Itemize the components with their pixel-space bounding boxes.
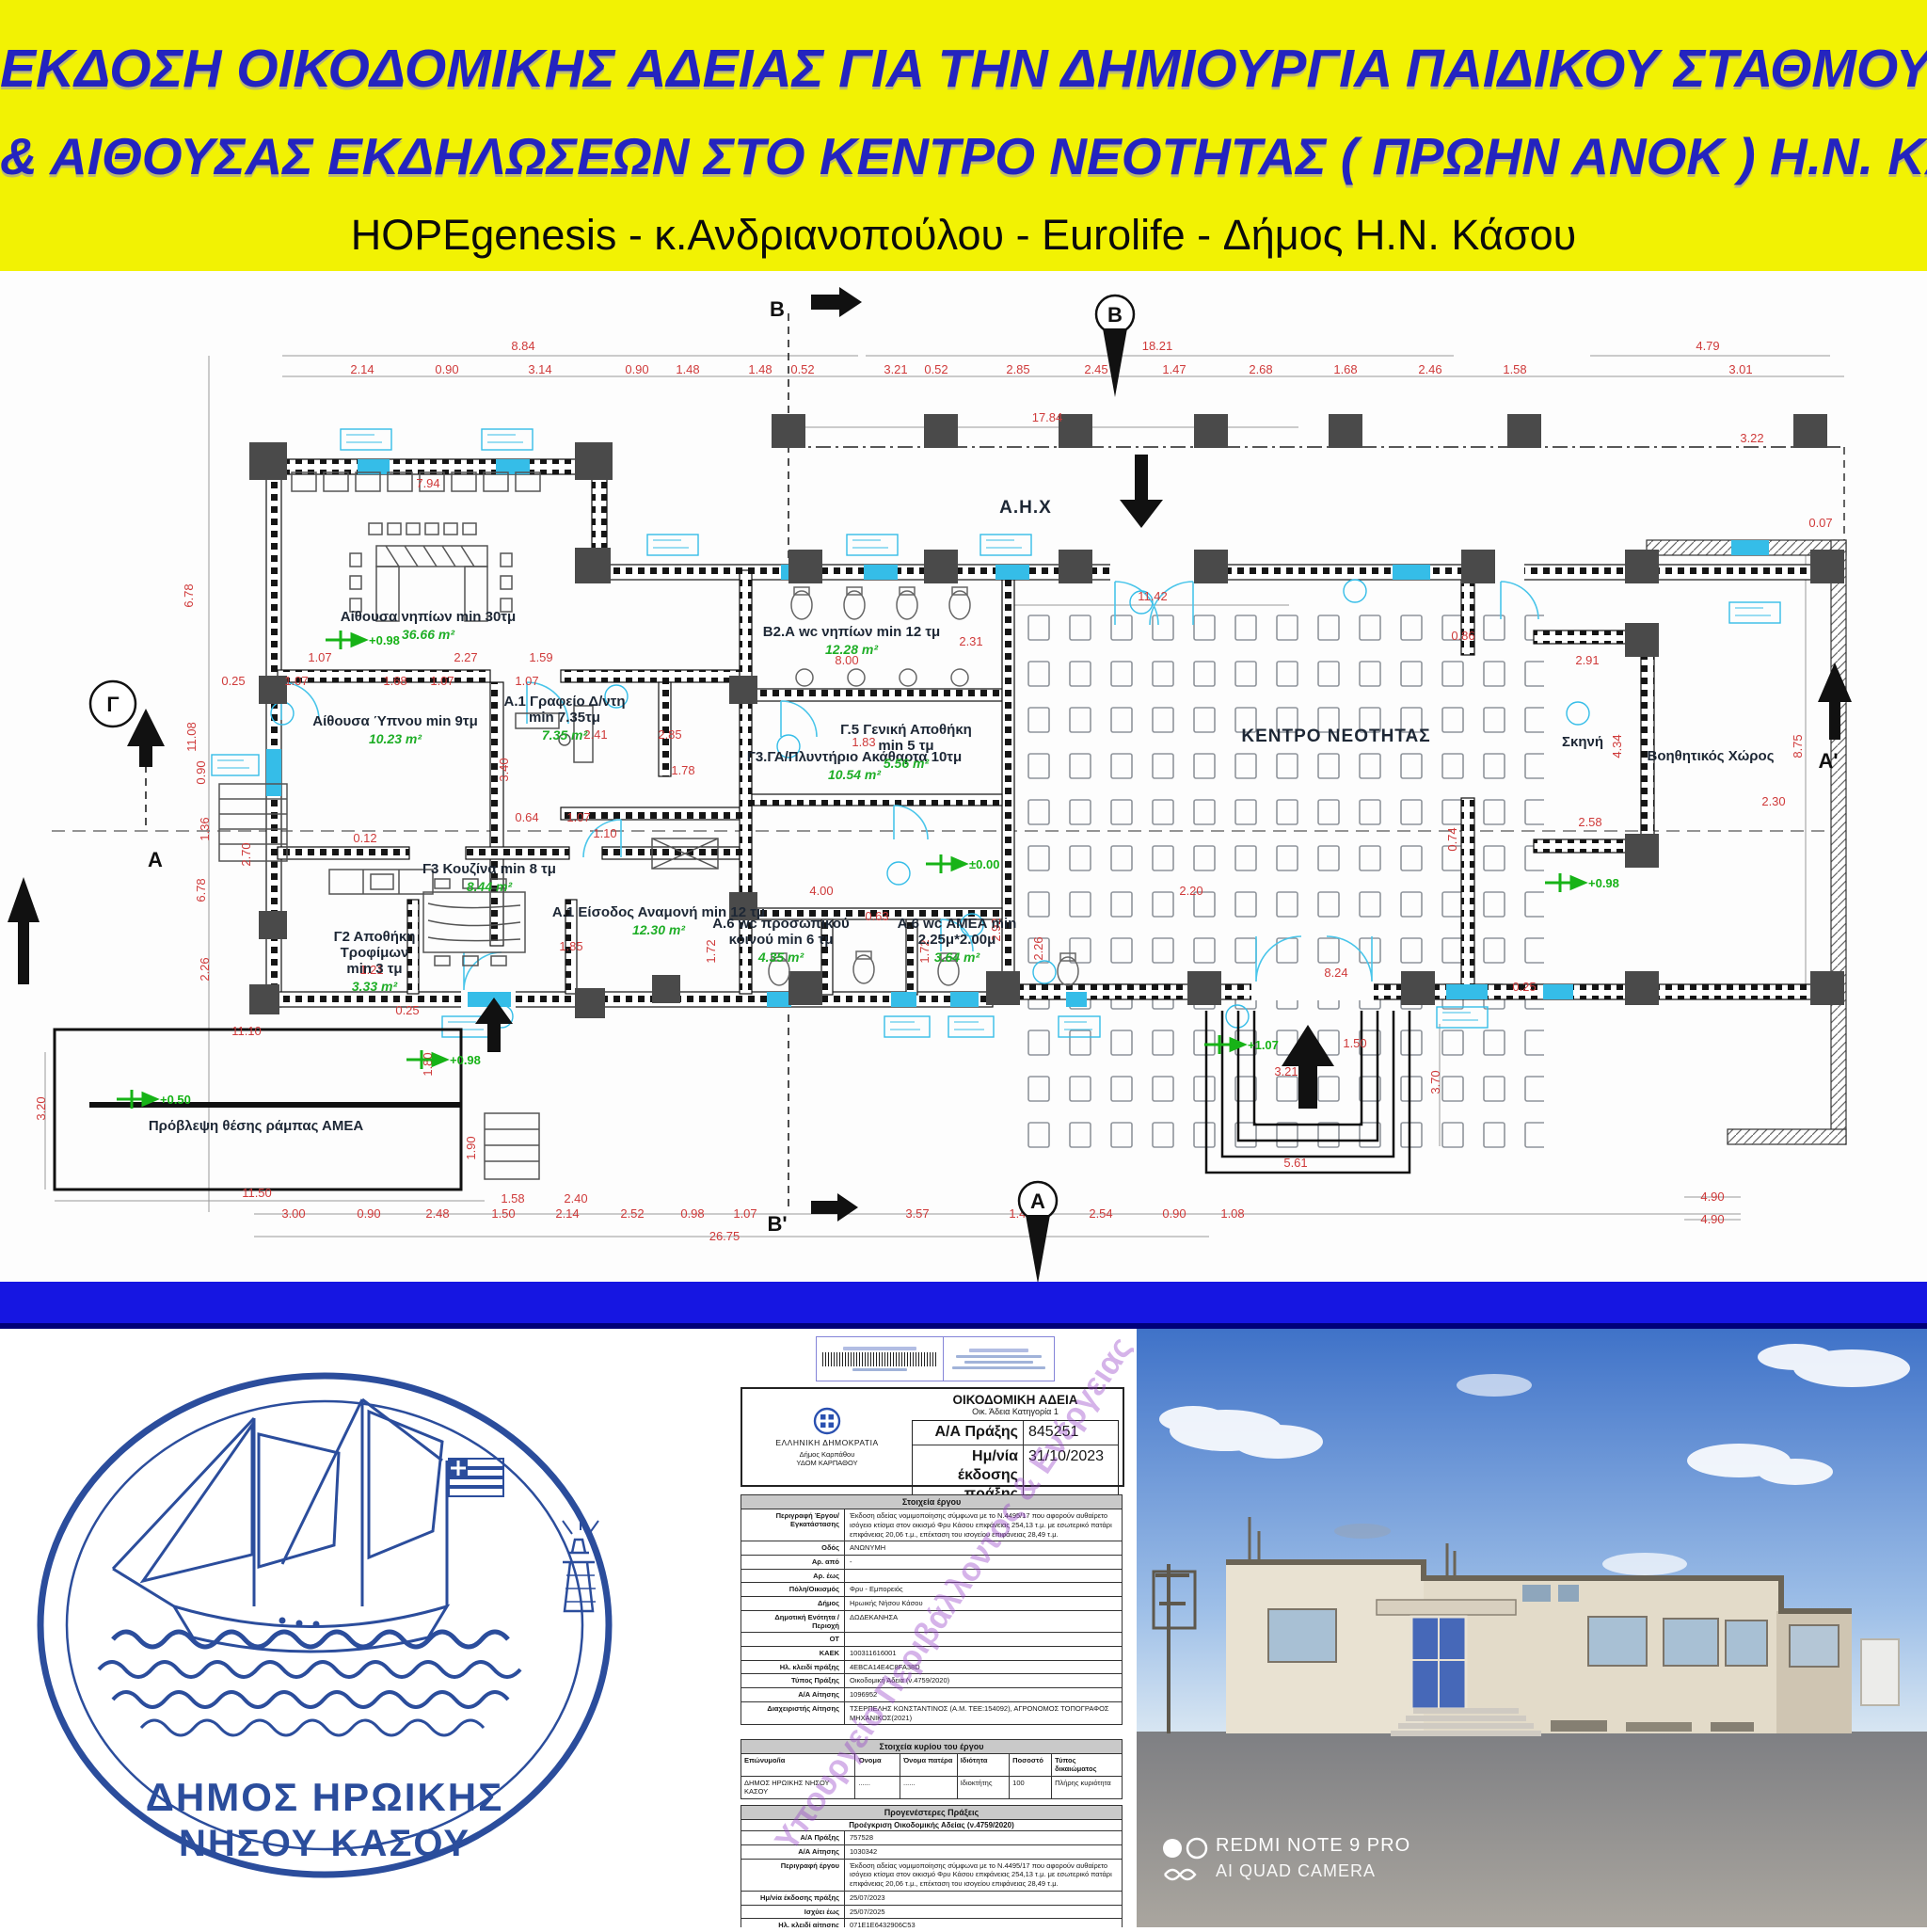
dimension-text: 2.48 (425, 1206, 449, 1221)
dimension-text: 5.61 (1283, 1156, 1307, 1170)
dimension-text: 3.00 (281, 1206, 305, 1221)
dimension-text: 17.84 (1032, 410, 1063, 424)
dimension-text: 0.52 (924, 362, 948, 376)
dimension-text: 2.27 (454, 650, 477, 664)
dimension-text: 1.50 (491, 1206, 515, 1221)
dimension-text: 1.85 (559, 939, 582, 953)
seal-caption-2: ΝΗΣΟΥ ΚΑΣΟΥ (179, 1823, 470, 1864)
section-marker-β: Β (1096, 295, 1134, 397)
owner-cell: Πλήρης κυριότητα (1052, 1777, 1122, 1798)
photo-watermark-line1: REDMI NOTE 9 PRO (1216, 1835, 1410, 1857)
dimension-text: 8.84 (511, 339, 534, 353)
dimension-text: 2.45 (1084, 362, 1107, 376)
table-row: ΚΑΕΚ100311616001 (741, 1647, 1122, 1661)
owner-cell: 100 (1010, 1777, 1052, 1798)
plan-text: 12.28 m² (825, 642, 878, 657)
dimension-text: 7.94 (416, 476, 439, 490)
barcode-box (817, 1337, 944, 1381)
dimension-text: 18.21 (1142, 339, 1173, 353)
plan-text: 3.64 m² (934, 950, 980, 965)
agency-sub1: Δήμος Καρπάθου (800, 1450, 855, 1459)
dimension-text: 0.90 (625, 362, 648, 376)
plan-text: 36.66 m² (402, 627, 454, 642)
table-row: ΟΤ (741, 1633, 1122, 1646)
dimension-text: 2.14 (555, 1206, 579, 1221)
waves (99, 1632, 520, 1735)
dimension-text: 2.85 (1006, 362, 1029, 376)
plan-text: Σκηνή (1562, 734, 1603, 750)
svg-text:+1.07: +1.07 (1248, 1038, 1279, 1052)
elevation-marker: +0.98 (406, 1050, 481, 1069)
table-row: Α/Α Αίτησης1030342 (741, 1845, 1122, 1860)
dimension-text: 6.78 (182, 583, 196, 607)
dimension-text: 1.10 (593, 826, 616, 840)
plan-text: 5.56 m² (884, 756, 930, 771)
dimension-text: 2.52 (620, 1206, 644, 1221)
dimension-text: 26.75 (709, 1229, 741, 1243)
dimension-text: 3.01 (1728, 362, 1752, 376)
table-row: Περιγραφή έργουΈκδοση αδείας νομιμοποίησ… (741, 1860, 1122, 1892)
dimension-text: 3.22 (1740, 431, 1763, 445)
tag-box (212, 429, 1780, 1037)
barcode-stripes (822, 1352, 937, 1366)
dimension-text: 3.57 (905, 1206, 929, 1221)
dimension-text: 1.07 (284, 674, 308, 688)
table-row: Αρ. από- (741, 1556, 1122, 1570)
table-row: Ισχύει έως25/07/2025 (741, 1906, 1122, 1920)
arrow-entry-down (1120, 500, 1163, 528)
dimension-text: 1.59 (529, 650, 552, 664)
dimension-text: 3.21 (884, 362, 907, 376)
dimension-text: 2.41 (583, 727, 607, 742)
owner-col-header: Όνομα (855, 1754, 900, 1777)
dimension-text: 2.26 (1031, 936, 1045, 960)
dimension-text: 1.36 (198, 817, 212, 840)
owner-cell: ...... (855, 1777, 900, 1798)
svg-text:Α: Α (1030, 1190, 1045, 1213)
svg-text:Β': Β' (767, 1212, 787, 1236)
seal-caption-1: ΔΗΜΟΣ ΗΡΩΙΚΗΣ (146, 1775, 504, 1819)
table-row: ΔήμοςΗρωικής Νήσου Κάσου (741, 1597, 1122, 1611)
dimension-text: 1.07 (308, 650, 331, 664)
dimension-text: 2.68 (1249, 362, 1272, 376)
building-photo: REDMI NOTE 9 PRO AI QUAD CAMERA (1137, 1329, 1927, 1927)
plan-text: 8.44 m² (467, 879, 513, 894)
table-row: ΟδόςΑΝΩΝΥΜΗ (741, 1541, 1122, 1556)
dimension-text: 0.74 (1445, 827, 1459, 851)
table-row: Περιγραφή Έργου/ΕγκατάστασηςΈκδοση αδεία… (741, 1509, 1122, 1541)
dimension-text: 11.10 (231, 1024, 262, 1038)
dimension-text: 2.31 (959, 634, 982, 648)
plan-text: 10.54 m² (828, 767, 881, 782)
dimension-text: 2.20 (1179, 884, 1202, 898)
dimension-text: 4.34 (1610, 734, 1624, 758)
section-marker-β: Β (770, 297, 785, 321)
project-details-table: Στοιχεία έργου Περιγραφή Έργου/Εγκατάστα… (741, 1494, 1123, 1725)
plan-text: Πρόβλεψη θέσης ράμπας ΑΜΕΑ (149, 1118, 364, 1134)
svg-text:+0.50: +0.50 (160, 1093, 191, 1107)
dimension-text: 0.90 (194, 760, 208, 784)
dimension-text: 0.64 (515, 810, 538, 824)
dimension-text: 4.90 (1700, 1212, 1724, 1226)
dimension-text: 0.90 (435, 362, 458, 376)
photo-watermark-line2: AI QUAD CAMERA (1216, 1861, 1376, 1881)
dimension-text: 1.58 (1503, 362, 1526, 376)
dimension-text: 3.20 (34, 1096, 48, 1120)
plan-text: 2.25μ*2.00μ (918, 932, 996, 948)
owner-col-header: Τύπος δικαιώματος (1052, 1754, 1122, 1777)
elevation-marker: +0.98 (326, 631, 400, 649)
owner-cell: ΔΗΜΟΣ ΗΡΩΙΚΗΣ ΝΗΣΟΥ ΚΑΣΟΥ (741, 1777, 855, 1798)
table-row: Α/Α Πράξης845251 (913, 1421, 1118, 1445)
dimension-text: 0.86 (1451, 629, 1474, 643)
dimension-text: 8.24 (1324, 966, 1347, 980)
elevation-marker: +0.98 (1545, 873, 1619, 892)
arrow-a-left (8, 877, 40, 984)
window-tags (212, 429, 1780, 1037)
section-marker-α: Α (1019, 1182, 1057, 1282)
plan-text: Αίθουσα νηπίων min 30τμ (341, 609, 516, 625)
dimension-text: 1.48 (748, 362, 772, 376)
owner-col-header: Όνομα πατέρα (900, 1754, 958, 1777)
dimension-text: 1.08 (1220, 1206, 1244, 1221)
plan-text: Βοηθητικός Χώρος (1647, 748, 1774, 764)
prior-acts-table: Προγενέστερες Πράξεις Προέγκριση Οικοδομ… (741, 1805, 1123, 1927)
plan-text: Α.6 wc προσωπικού (712, 916, 850, 932)
plan-text: Α.Η.Χ (999, 498, 1052, 518)
arrow-b-top (811, 287, 862, 317)
dimension-text: 1.58 (501, 1191, 524, 1206)
arrow-gamma (127, 709, 165, 767)
dimension-text: 2.30 (1761, 794, 1785, 808)
section-marker-α': Α' (1818, 749, 1838, 773)
sink-icon (796, 669, 968, 686)
document-header: ΕΛΛΗΝΙΚΗ ΔΗΜΟΚΡΑΤΙΑ Δήμος Καρπάθου ΥΔΟΜ … (741, 1387, 1124, 1487)
agency-sub2: ΥΔΟΜ ΚΑΡΠΑΘΟΥ (796, 1459, 857, 1467)
dimension-text: 1.47 (1162, 362, 1186, 376)
plan-text: Γ.5 Γενική Αποθήκη (840, 722, 972, 738)
svg-text:Β: Β (1107, 303, 1123, 327)
dimension-text: 3.70 (1428, 1070, 1442, 1094)
dimension-text: 2.70 (239, 842, 253, 866)
blue-divider-bar (0, 1282, 1927, 1329)
prior-subtitle: Προέγκριση Οικοδομικής Αδείας (ν.4759/20… (741, 1820, 1122, 1831)
section-marker-β': Β' (767, 1212, 787, 1236)
dimension-text: 8.75 (1791, 734, 1805, 758)
permit-title: ΟΙΚΟΔΟΜΙΚΗ ΑΔΕΙΑ (912, 1393, 1119, 1407)
table-row: Πόλη/ΟικισμόςΦρυ - Εμπορειός (741, 1583, 1122, 1597)
dimension-text: 0.90 (1162, 1206, 1186, 1221)
dimension-text: 0.25 (221, 674, 245, 688)
dimension-text: 0.07 (1808, 516, 1832, 530)
dimension-text: 11.50 (242, 1186, 272, 1200)
dimension-text: 2.14 (350, 362, 374, 376)
dimension-text: 0.25 (1512, 980, 1536, 994)
project-section-title: Στοιχεία έργου (741, 1495, 1122, 1509)
section-marker-α: Α (148, 848, 163, 871)
svg-text:Α': Α' (1818, 749, 1838, 773)
section-marker-γ: Γ (90, 681, 135, 726)
dimension-text: 2.91 (1575, 653, 1599, 667)
owner-cell: Ιδιοκτήτης (958, 1777, 1010, 1798)
sailing-ship (113, 1399, 447, 1652)
plan-text: 12.30 m² (632, 922, 685, 937)
dimension-text: 1.50 (1343, 1036, 1366, 1050)
svg-text:+0.98: +0.98 (369, 633, 400, 647)
dimension-text: 2.58 (1578, 815, 1601, 829)
agency-name: ΕΛΛΗΝΙΚΗ ΔΗΜΟΚΡΑΤΙΑ (775, 1438, 878, 1447)
dimension-text: 0.63 (865, 909, 888, 923)
title-banner: ΕΚΔΟΣΗ ΟΙΚΟΔΟΜΙΚΗΣ ΑΔΕΙΑΣ ΓΙΑ ΤΗΝ ΔΗΜΙΟΥ… (0, 0, 1927, 271)
arrow-b-bottom (811, 1193, 858, 1221)
dimension-text: 1.07 (430, 674, 454, 688)
municipal-seal: ΔΗΜΟΣ ΗΡΩΙΚΗΣ ΝΗΣΟΥ ΚΑΣΟΥ (0, 1329, 731, 1927)
plan-text: 7.35 m² (542, 727, 588, 742)
plan-text: min 7.35τμ (529, 710, 600, 726)
dimension-text: 0.90 (357, 1206, 380, 1221)
plan-text: ΚΕΝΤΡΟ ΝΕΟΤΗΤΑΣ (1241, 726, 1430, 746)
table-row: Α/Α Πράξης757528 (741, 1831, 1122, 1845)
dimension-text: 0.12 (353, 831, 376, 845)
svg-text:Α: Α (148, 848, 163, 871)
owner-col-header: Ποσοστό (1010, 1754, 1052, 1777)
elevation-marker: ±0.00 (926, 854, 999, 873)
dimension-text: 4.90 (1700, 1190, 1724, 1204)
table-row: Αρ. έως (741, 1570, 1122, 1583)
plan-text: Β2.Α wc νηπίων min 12 τμ (763, 624, 940, 640)
table-row: Ημ/νία έκδοσης πράξης25/07/2023 (741, 1892, 1122, 1906)
barcode-info-box (944, 1337, 1054, 1381)
outer-hatched-wall (1647, 540, 1846, 1144)
dimension-text: 1.07 (515, 674, 538, 688)
plan-text: 10.23 m² (369, 731, 422, 746)
dimension-text: 2.54 (1089, 1206, 1112, 1221)
asphalt-ground (1137, 1732, 1927, 1927)
ramp-area (55, 1030, 461, 1190)
dimension-text: 1.07 (733, 1206, 756, 1221)
dimension-text: 3.40 (497, 758, 511, 781)
dimension-text: 2.26 (198, 957, 212, 981)
dimension-text: 11.08 (184, 722, 199, 752)
greek-emblem-icon (813, 1407, 841, 1435)
dimension-text: 4.00 (809, 884, 833, 898)
dimension-text: 1.72 (704, 939, 718, 963)
dimension-text: 1.90 (464, 1136, 478, 1159)
prior-section-title: Προγενέστερες Πράξεις (741, 1806, 1122, 1820)
plan-text: min 3 τμ (346, 961, 402, 977)
owner-cell: ...... (900, 1777, 958, 1798)
table-row: Ηλ. κλειδί αίτησης071E1E6432906C53 (741, 1919, 1122, 1927)
banner-title-line1: ΕΚΔΟΣΗ ΟΙΚΟΔΟΜΙΚΗΣ ΑΔΕΙΑΣ ΓΙΑ ΤΗΝ ΔΗΜΙΟΥ… (0, 38, 1927, 100)
plan-text: κοινού min 6 τμ (729, 932, 834, 948)
svg-text:+0.98: +0.98 (450, 1053, 481, 1067)
table-row: Δημοτική Ενότητα / ΠεριοχήΔΩΔΕΚΑΝΗΣΑ (741, 1611, 1122, 1634)
banner-sponsors-line: HOPEgenesis - κ.Ανδριανοπούλου - Eurolif… (0, 211, 1927, 260)
floor-plan: 8.8418.214.792.140.903.140.901.481.480.5… (0, 271, 1927, 1282)
svg-text:±0.00: ±0.00 (969, 857, 999, 871)
plan-text: Γ2 Αποθήκη (334, 929, 416, 945)
plan-text: 3.33 m² (352, 979, 398, 994)
dimension-text: 6.78 (194, 878, 208, 902)
dimension-text: 1.07 (566, 810, 590, 824)
table-row: Ηλ. κλειδί πράξης4EBCA14E4C8FA38D (741, 1661, 1122, 1675)
svg-text:Β: Β (770, 297, 785, 321)
owner-col-header: Επώνυμο/ία (741, 1754, 855, 1777)
plan-text: Αίθουσα Ύπνου min 9τμ (312, 713, 478, 729)
dimension-text: 3.21 (1274, 1064, 1298, 1078)
owner-table: Στοιχεία κυρίου του έργου Επώνυμο/ίαΌνομ… (741, 1739, 1123, 1799)
dimension-text: 2.46 (1418, 362, 1441, 376)
table-row: Διαχειριστής ΑίτησηςΤΣΕΡΠΕΛΗΣ ΚΩΝΣΤΑΝΤΙΝ… (741, 1702, 1122, 1725)
svg-text:+0.98: +0.98 (1588, 876, 1619, 890)
dimension-text: 2.40 (564, 1191, 587, 1206)
banner-title-line2: & ΑΙΘΟΥΣΑΣ ΕΚΔΗΛΩΣΕΩΝ ΣΤΟ ΚΕΝΤΡΟ ΝΕΟΤΗΤΑ… (0, 126, 1927, 186)
plan-text: Τροφίμων (341, 945, 409, 961)
dimension-text: 2.85 (658, 727, 681, 742)
dimension-text: 1.68 (1333, 362, 1357, 376)
plan-text: min 5 τμ (878, 738, 933, 754)
barcode-header (816, 1336, 1055, 1381)
permit-subtitle: Οικ. Άδεια Κατηγορία 1 (912, 1407, 1119, 1416)
dimension-text: 11.42 (1138, 589, 1168, 603)
dimension-text: 0.25 (395, 1003, 419, 1017)
dimension-text: 1.48 (676, 362, 699, 376)
owner-section-title: Στοιχεία κυρίου του έργου (741, 1740, 1122, 1754)
dimension-text: 0.98 (680, 1206, 704, 1221)
table-row: Τύπος ΠράξηςΟικοδομική Άδεια (ν.4759/202… (741, 1674, 1122, 1688)
dimension-text: 1.68 (383, 674, 406, 688)
floor-plan-drawing: 8.8418.214.792.140.903.140.901.481.480.5… (0, 271, 1927, 1282)
plan-text: Α.1 Γραφείο Δ/ντη (504, 694, 626, 710)
greek-flag (449, 1459, 503, 1496)
dimension-text: 1.78 (671, 763, 694, 777)
dimension-text: 4.79 (1696, 339, 1719, 353)
plan-text: Γ3 Κουζίνα min 8 τμ (422, 861, 556, 877)
plan-text: Α.6 wc ΑΜΕΑ min (898, 916, 1017, 932)
dimension-text: 3.14 (528, 362, 551, 376)
building-permit-document: Υπουργείο Περιβάλλοντος & Ενέργειας ΕΛΛΗ… (731, 1329, 1134, 1927)
owner-col-header: Ιδιότητα (958, 1754, 1010, 1777)
table-row: Α/Α Αίτησης1096952 (741, 1688, 1122, 1702)
dimension-text: 0.52 (790, 362, 814, 376)
svg-text:Γ: Γ (106, 693, 119, 716)
plan-text: 4.35 m² (757, 950, 804, 965)
